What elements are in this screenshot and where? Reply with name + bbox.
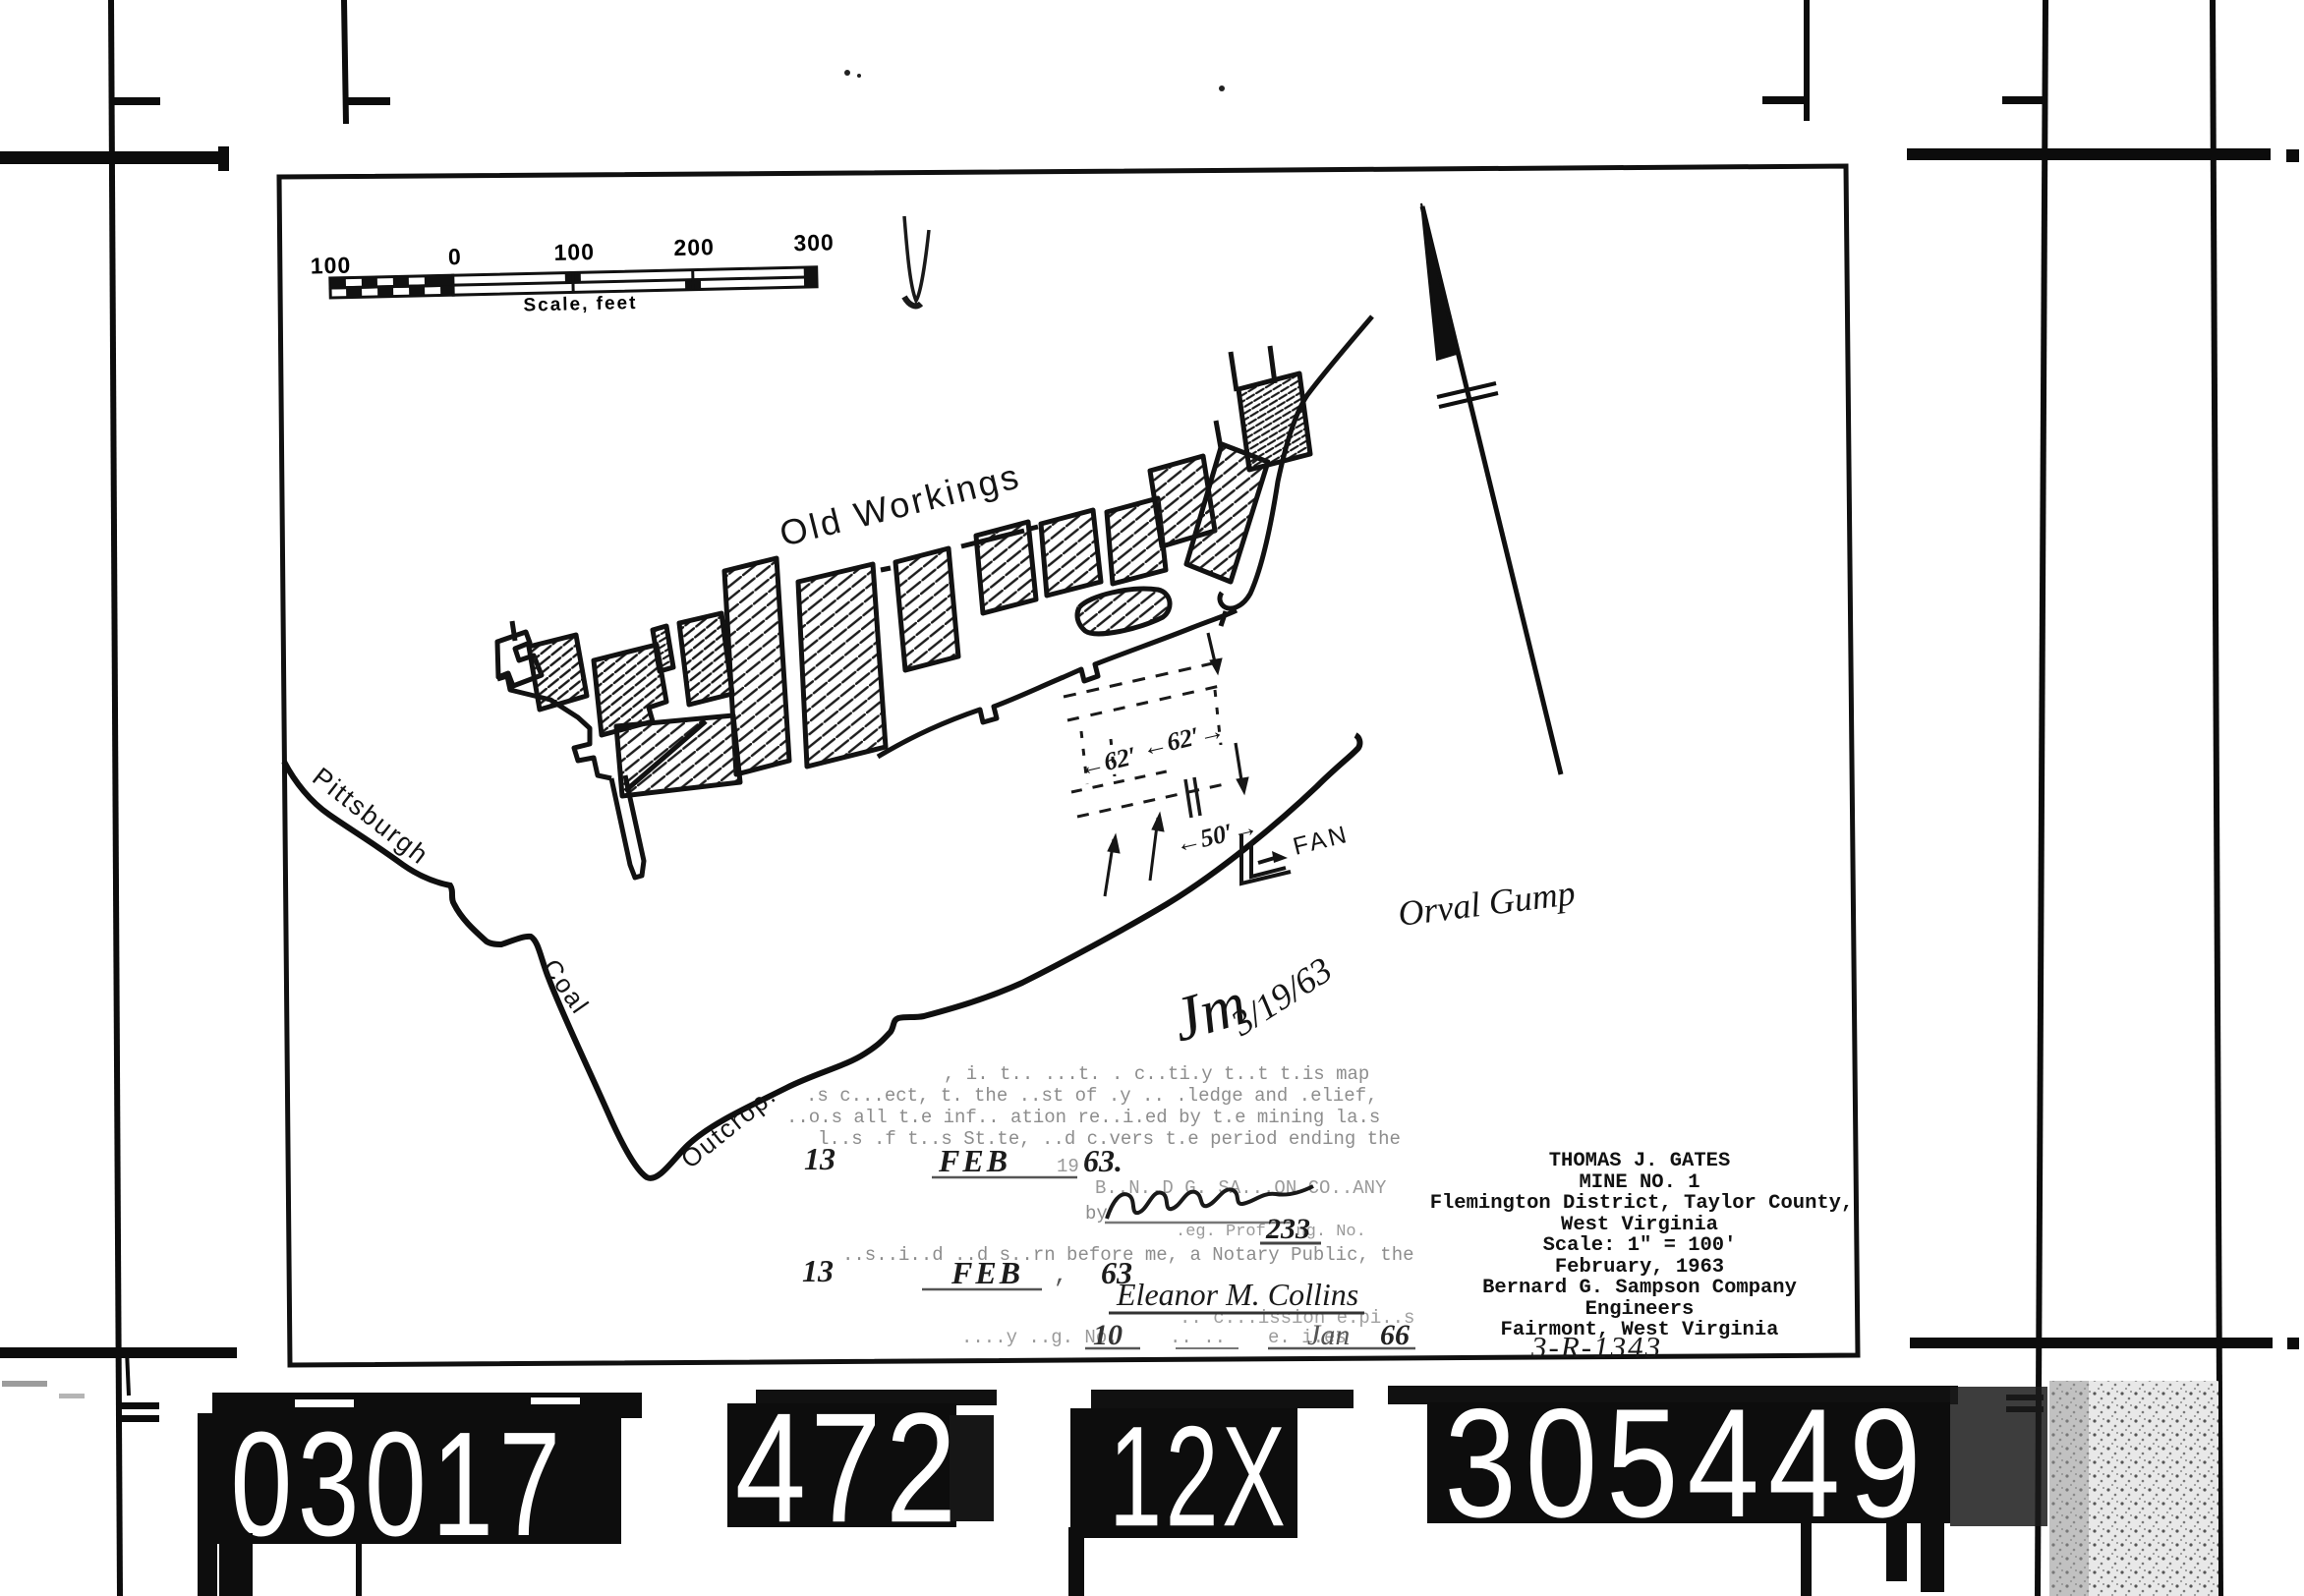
svg-text:66: 66 <box>1380 1319 1410 1351</box>
svg-text:10: 10 <box>1093 1319 1123 1351</box>
svg-text:200: 200 <box>673 234 715 260</box>
svg-text:Jan: Jan <box>1307 1319 1350 1351</box>
svg-text:THOMAS J. GATES: THOMAS J. GATES <box>1549 1150 1731 1172</box>
svg-text:3-R-1343: 3-R-1343 <box>1530 1330 1662 1364</box>
svg-text:19: 19 <box>1057 1156 1079 1177</box>
svg-text:by: by <box>1085 1203 1108 1225</box>
svg-text:233: 233 <box>1265 1213 1310 1245</box>
svg-text:February, 1963: February, 1963 <box>1555 1256 1724 1279</box>
svg-text:Scale: 1" = 100': Scale: 1" = 100' <box>1543 1234 1737 1257</box>
svg-text:,: , <box>1054 1263 1067 1289</box>
svg-text:West Virginia: West Virginia <box>1561 1214 1718 1236</box>
svg-text:63.: 63. <box>1083 1143 1123 1178</box>
svg-text:472: 472 <box>735 1381 961 1555</box>
svg-text:..o.s all t.e inf.. ation re.: ..o.s all t.e inf.. ation re..i.ed by t.… <box>786 1107 1380 1128</box>
svg-text:, i. t.. ...t. . c..ti.y t..t: , i. t.. ...t. . c..ti.y t..t t.is map <box>944 1063 1369 1085</box>
svg-text:100: 100 <box>311 253 352 279</box>
svg-text:.. ..: .. .. <box>1170 1327 1226 1348</box>
svg-text:12X: 12X <box>1109 1397 1289 1557</box>
svg-text:Bernard G. Sampson Company: Bernard G. Sampson Company <box>1482 1277 1797 1299</box>
svg-text:13: 13 <box>804 1141 835 1176</box>
svg-text:03017: 03017 <box>230 1401 565 1567</box>
svg-text:305449: 305449 <box>1444 1376 1930 1550</box>
svg-text:Engineers: Engineers <box>1585 1298 1695 1321</box>
svg-text:100: 100 <box>553 239 595 265</box>
svg-text:0: 0 <box>448 244 461 269</box>
svg-text:Flemington District, Taylor Co: Flemington District, Taylor County, <box>1430 1192 1854 1215</box>
svg-text:B..N..D G. SA...ON CO..ANY: B..N..D G. SA...ON CO..ANY <box>1095 1177 1387 1199</box>
svg-text:Scale, feet: Scale, feet <box>523 293 637 316</box>
svg-text:13: 13 <box>802 1253 834 1288</box>
svg-text:FEB: FEB <box>950 1255 1023 1290</box>
svg-text:.s c...ect, t. the ..st of .y: .s c...ect, t. the ..st of .y .. .ledge … <box>806 1085 1378 1107</box>
svg-text:FEB: FEB <box>938 1143 1010 1178</box>
svg-text:Eleanor M. Collins: Eleanor M. Collins <box>1116 1277 1358 1312</box>
svg-text:300: 300 <box>793 229 835 256</box>
svg-text:MINE NO. 1: MINE NO. 1 <box>1579 1171 1699 1194</box>
